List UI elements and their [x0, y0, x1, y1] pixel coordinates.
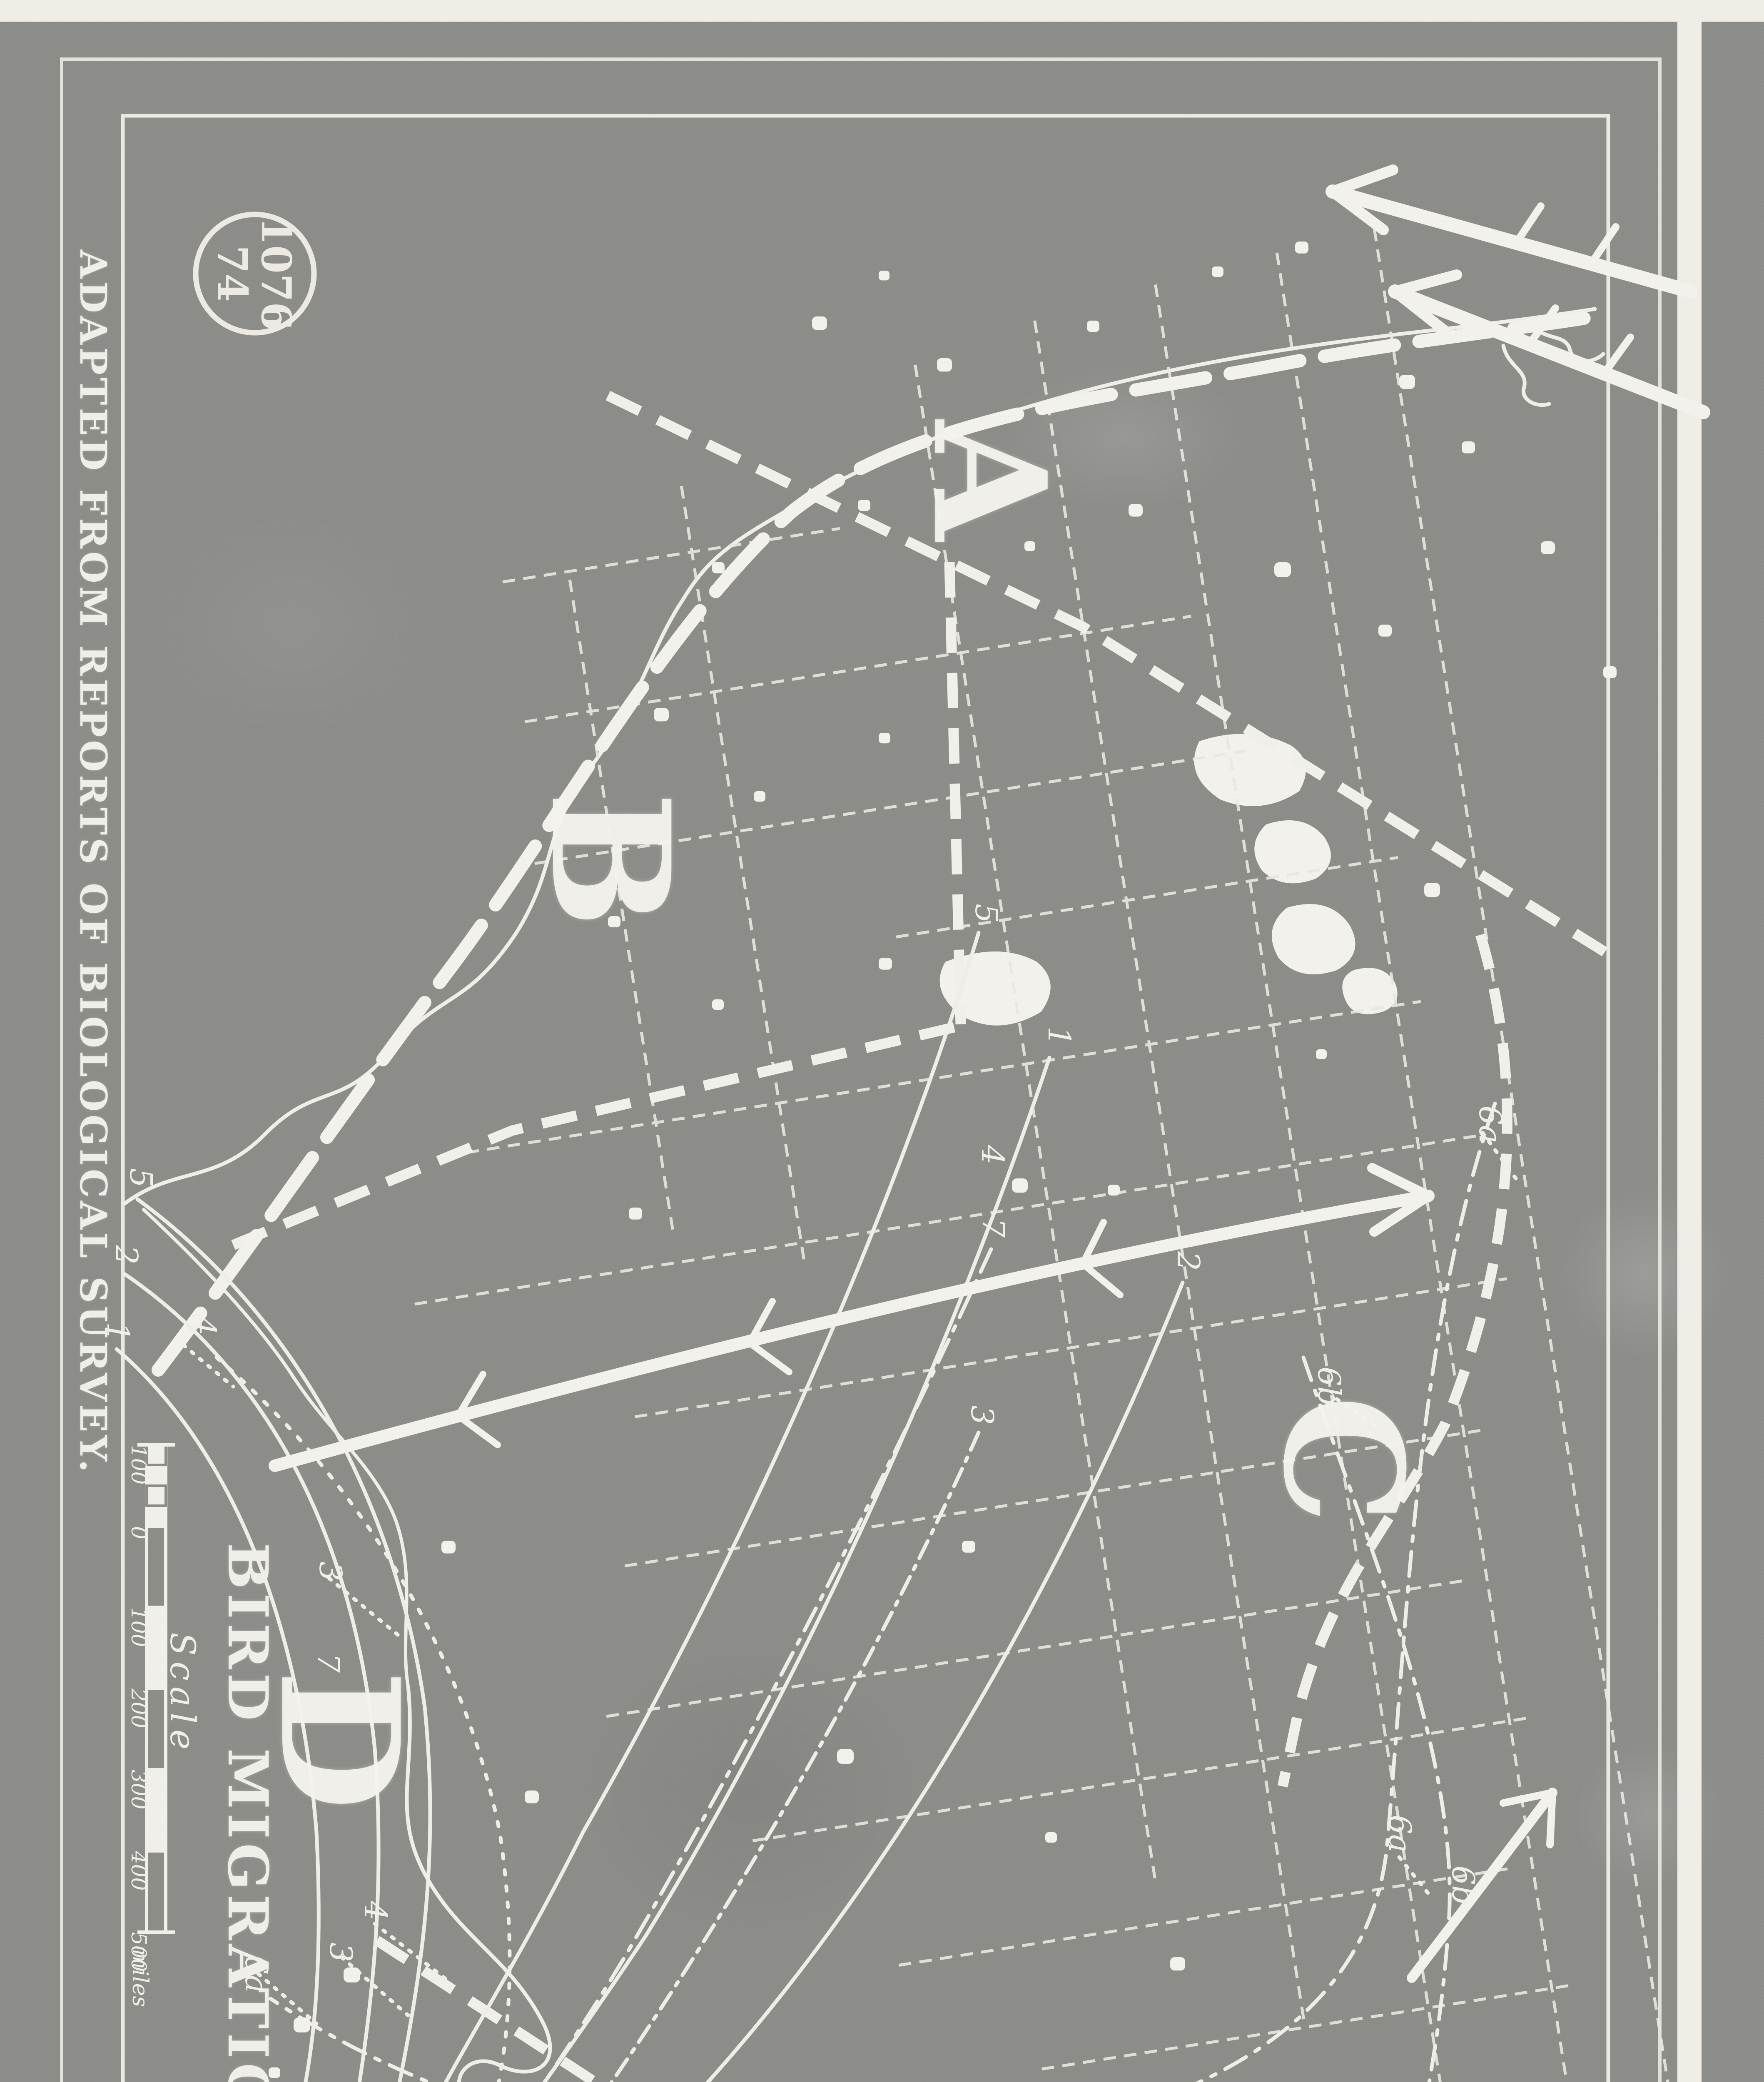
coastline-pacific	[125, 309, 1595, 1203]
reservation-marker	[629, 1208, 642, 1220]
scale-tick: 100	[128, 1445, 149, 1484]
stamp-subnumber: 74	[208, 245, 256, 302]
reservation-marker	[294, 2017, 310, 2032]
map-line-label: 6b	[1448, 1865, 1478, 1905]
scale-tick: 300	[128, 1770, 149, 1809]
flyway-arrow-coastal	[1412, 1793, 1552, 1978]
map-line-label: 1	[1044, 1026, 1074, 1046]
map-line-label: 2	[111, 1245, 142, 1265]
reservation-marker	[1012, 1178, 1028, 1193]
reservation-marker	[1603, 666, 1617, 678]
songbird-boundary-6a	[271, 1103, 1495, 2082]
reservation-marker	[654, 708, 669, 721]
reservation-marker	[879, 271, 889, 280]
side-caption: ADAPTED FROM REPORTS OF BIOLOGICAL SURVE…	[75, 250, 112, 1475]
map-line-label: 1	[102, 1322, 133, 1342]
flyway-arrow-pacific-north	[1333, 170, 1691, 291]
district-letter-D: D	[258, 1670, 421, 1811]
reservation-marker	[1274, 562, 1291, 577]
reservation-marker	[1087, 321, 1099, 332]
map-line-label: 6b	[1313, 1367, 1344, 1406]
district-letter-B: B	[529, 791, 691, 929]
map-line-label: 6a	[1384, 1815, 1415, 1853]
map-line-label: 7	[313, 1653, 344, 1673]
reservation-marker	[1024, 541, 1035, 551]
map-line-label: 3	[967, 1405, 997, 1425]
scale-tick: 100	[128, 1607, 149, 1647]
map-line-label: 7	[978, 1218, 1009, 1238]
map-line-label: 4	[360, 1901, 391, 1920]
reservation-marker	[937, 358, 952, 371]
reservation-marker	[344, 1967, 360, 1982]
coastline-gulf-atlantic	[292, 1686, 1582, 2082]
map-line-label: 2	[1173, 1251, 1203, 1271]
scale-tick: 500	[128, 1932, 149, 1972]
map-line-label: 6a	[241, 1955, 272, 1993]
reservation-marker	[1129, 504, 1143, 517]
scale-tick: 400	[128, 1851, 149, 1890]
reservation-marker	[441, 1541, 456, 1554]
reservation-marker	[525, 1791, 539, 1803]
reservation-marker	[812, 316, 827, 330]
district-boundary	[608, 396, 1607, 954]
catalog-stamp: 1076 74	[196, 214, 314, 333]
reservation-marker	[1212, 266, 1223, 277]
stamp-number: 1076	[252, 217, 300, 331]
reservation-marker	[1462, 441, 1475, 453]
scale-label: Scale	[165, 1632, 199, 1756]
reservation-marker	[962, 1541, 975, 1553]
reservation-marker	[1316, 1049, 1327, 1059]
flyway-line-5	[396, 933, 979, 2082]
district-boundary	[949, 562, 961, 1024]
reservation-marker	[837, 1749, 854, 1764]
district-letter-C: C	[1262, 1395, 1424, 1524]
scale-tick: 0	[128, 1526, 149, 1539]
map-line-label: 3	[325, 1943, 356, 1962]
reservation-marker	[1045, 1832, 1057, 1843]
reservation-marker	[1295, 242, 1308, 254]
flyway-line-3b	[583, 1432, 979, 2082]
lantern-slide: 1076 74	[0, 0, 1764, 2082]
district-boundary	[1283, 935, 1507, 1786]
reservation-marker	[1170, 1957, 1185, 1970]
flyway-line-2b	[479, 1283, 1183, 2082]
map-line-label: 5	[971, 904, 1002, 923]
reservation-marker	[1399, 375, 1415, 389]
reservation-marker	[879, 958, 892, 970]
reservation-marker	[754, 791, 765, 802]
scale-tick: 200	[128, 1689, 149, 1728]
map-line-label: 3	[315, 1561, 346, 1581]
reservation-marker	[1108, 1185, 1120, 1195]
map-line-label: 4	[189, 1316, 220, 1335]
reservation-marker	[1541, 541, 1555, 554]
map-title: BIRD MIGRATION	[220, 1543, 275, 2082]
reservation-marker	[712, 999, 724, 1010]
map-line-label: 5	[125, 1168, 156, 1188]
reservation-marker	[712, 562, 725, 573]
coastal-flyway-line	[158, 316, 1595, 1370]
reservation-marker	[858, 500, 870, 511]
district-letter-A: A	[912, 421, 1066, 540]
district-boundary	[233, 1026, 958, 1245]
map-line-label: 6a	[1475, 1106, 1505, 1143]
reservation-marker	[1378, 625, 1392, 637]
reservation-marker	[879, 733, 890, 743]
reservation-marker	[1424, 883, 1440, 897]
map-line-label: 4	[977, 1145, 1008, 1165]
